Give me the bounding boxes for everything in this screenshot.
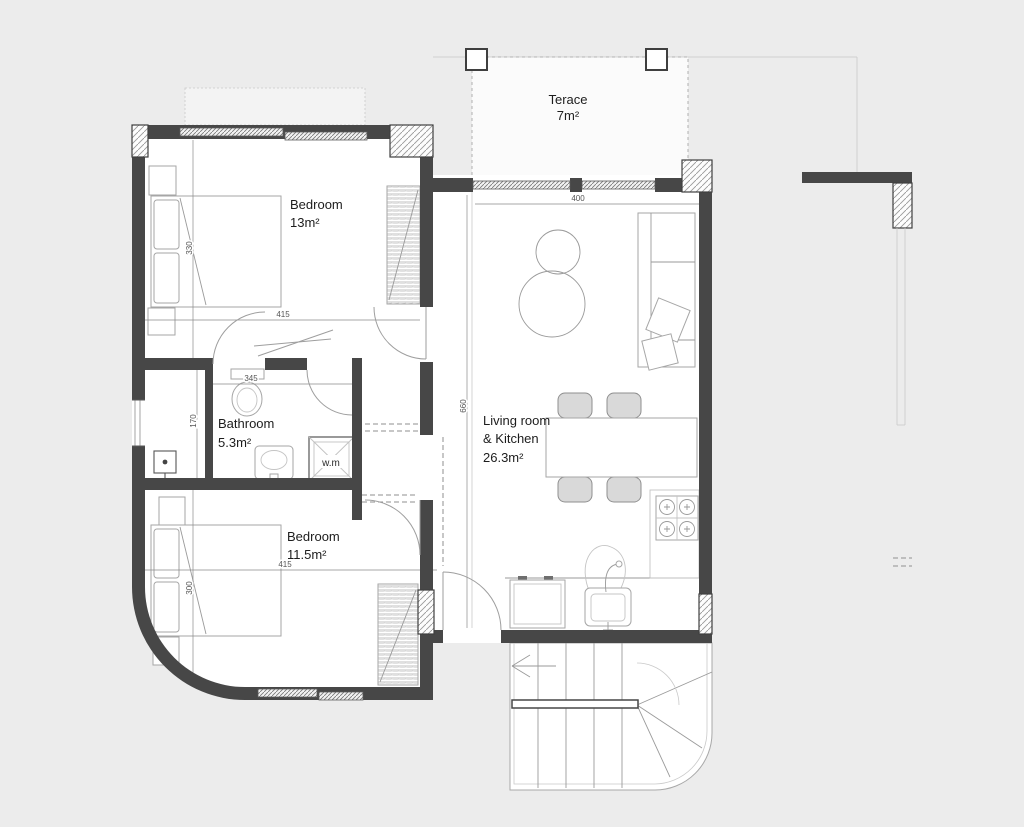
pier: [682, 160, 712, 192]
washing-machine: w.m: [309, 437, 354, 481]
stair-handrail: [512, 700, 638, 708]
dim-bedroom-top-height: 330: [185, 241, 194, 255]
pillow: [154, 200, 179, 249]
dining-table: [546, 418, 697, 477]
living-area: 26.3m²: [483, 450, 524, 465]
washing-machine-label: w.m: [321, 458, 340, 469]
nightstand: [159, 497, 185, 525]
sofa-pillow: [642, 334, 678, 370]
terrace-area: 7m²: [557, 108, 580, 123]
living-label-line2: & Kitchen: [483, 431, 539, 446]
dim-living-width: 400: [571, 194, 585, 203]
nightstand: [148, 308, 175, 335]
terrace-floor: [472, 57, 688, 175]
sofa: [638, 213, 695, 370]
stove: [656, 496, 698, 540]
dim-bedroom-bottom-width: 415: [278, 560, 292, 569]
chair: [558, 393, 592, 418]
pillow: [154, 529, 179, 578]
chair: [558, 477, 592, 502]
window: [319, 692, 363, 700]
dim-bedroom-bottom-height: 300: [185, 581, 194, 595]
window: [285, 132, 367, 140]
bedroom-bottom-label: Bedroom: [287, 529, 340, 544]
floor-plan-drawing: w.m: [0, 0, 1024, 827]
terrace-column: [466, 49, 487, 70]
terrace-column: [646, 49, 667, 70]
chair: [607, 477, 641, 502]
side-window: [132, 400, 145, 446]
upper-balcony-outline: [185, 88, 365, 125]
living-label-line1: Living room: [483, 413, 550, 428]
bedroom-top-area: 13m²: [290, 215, 320, 230]
pillow: [154, 253, 179, 303]
chair: [607, 393, 641, 418]
window: [180, 128, 283, 136]
terrace-label: Terace: [548, 92, 587, 107]
pier: [699, 594, 712, 634]
bathroom-label: Bathroom: [218, 416, 274, 431]
pier: [132, 125, 148, 157]
pier: [390, 125, 433, 157]
dim-living-height: 660: [459, 399, 468, 413]
window: [258, 689, 317, 697]
bedroom-bottom-area: 11.5m²: [287, 547, 327, 562]
bedroom-top-label: Bedroom: [290, 197, 343, 212]
toilet: [232, 382, 262, 416]
dim-bedroom-top-width: 415: [276, 310, 290, 319]
pier: [418, 590, 434, 634]
window: [473, 181, 570, 189]
pillow: [154, 582, 179, 632]
dim-bathroom-width: 345: [244, 374, 258, 383]
bathroom-area: 5.3m²: [218, 435, 252, 450]
fridge: [510, 576, 565, 628]
staircase-floor: [510, 643, 712, 790]
window: [582, 181, 655, 189]
dim-hall-height: 170: [189, 414, 198, 428]
floor-plan-page: w.m: [0, 0, 1024, 827]
nightstand: [149, 166, 176, 195]
adjacent-pier: [893, 183, 912, 228]
